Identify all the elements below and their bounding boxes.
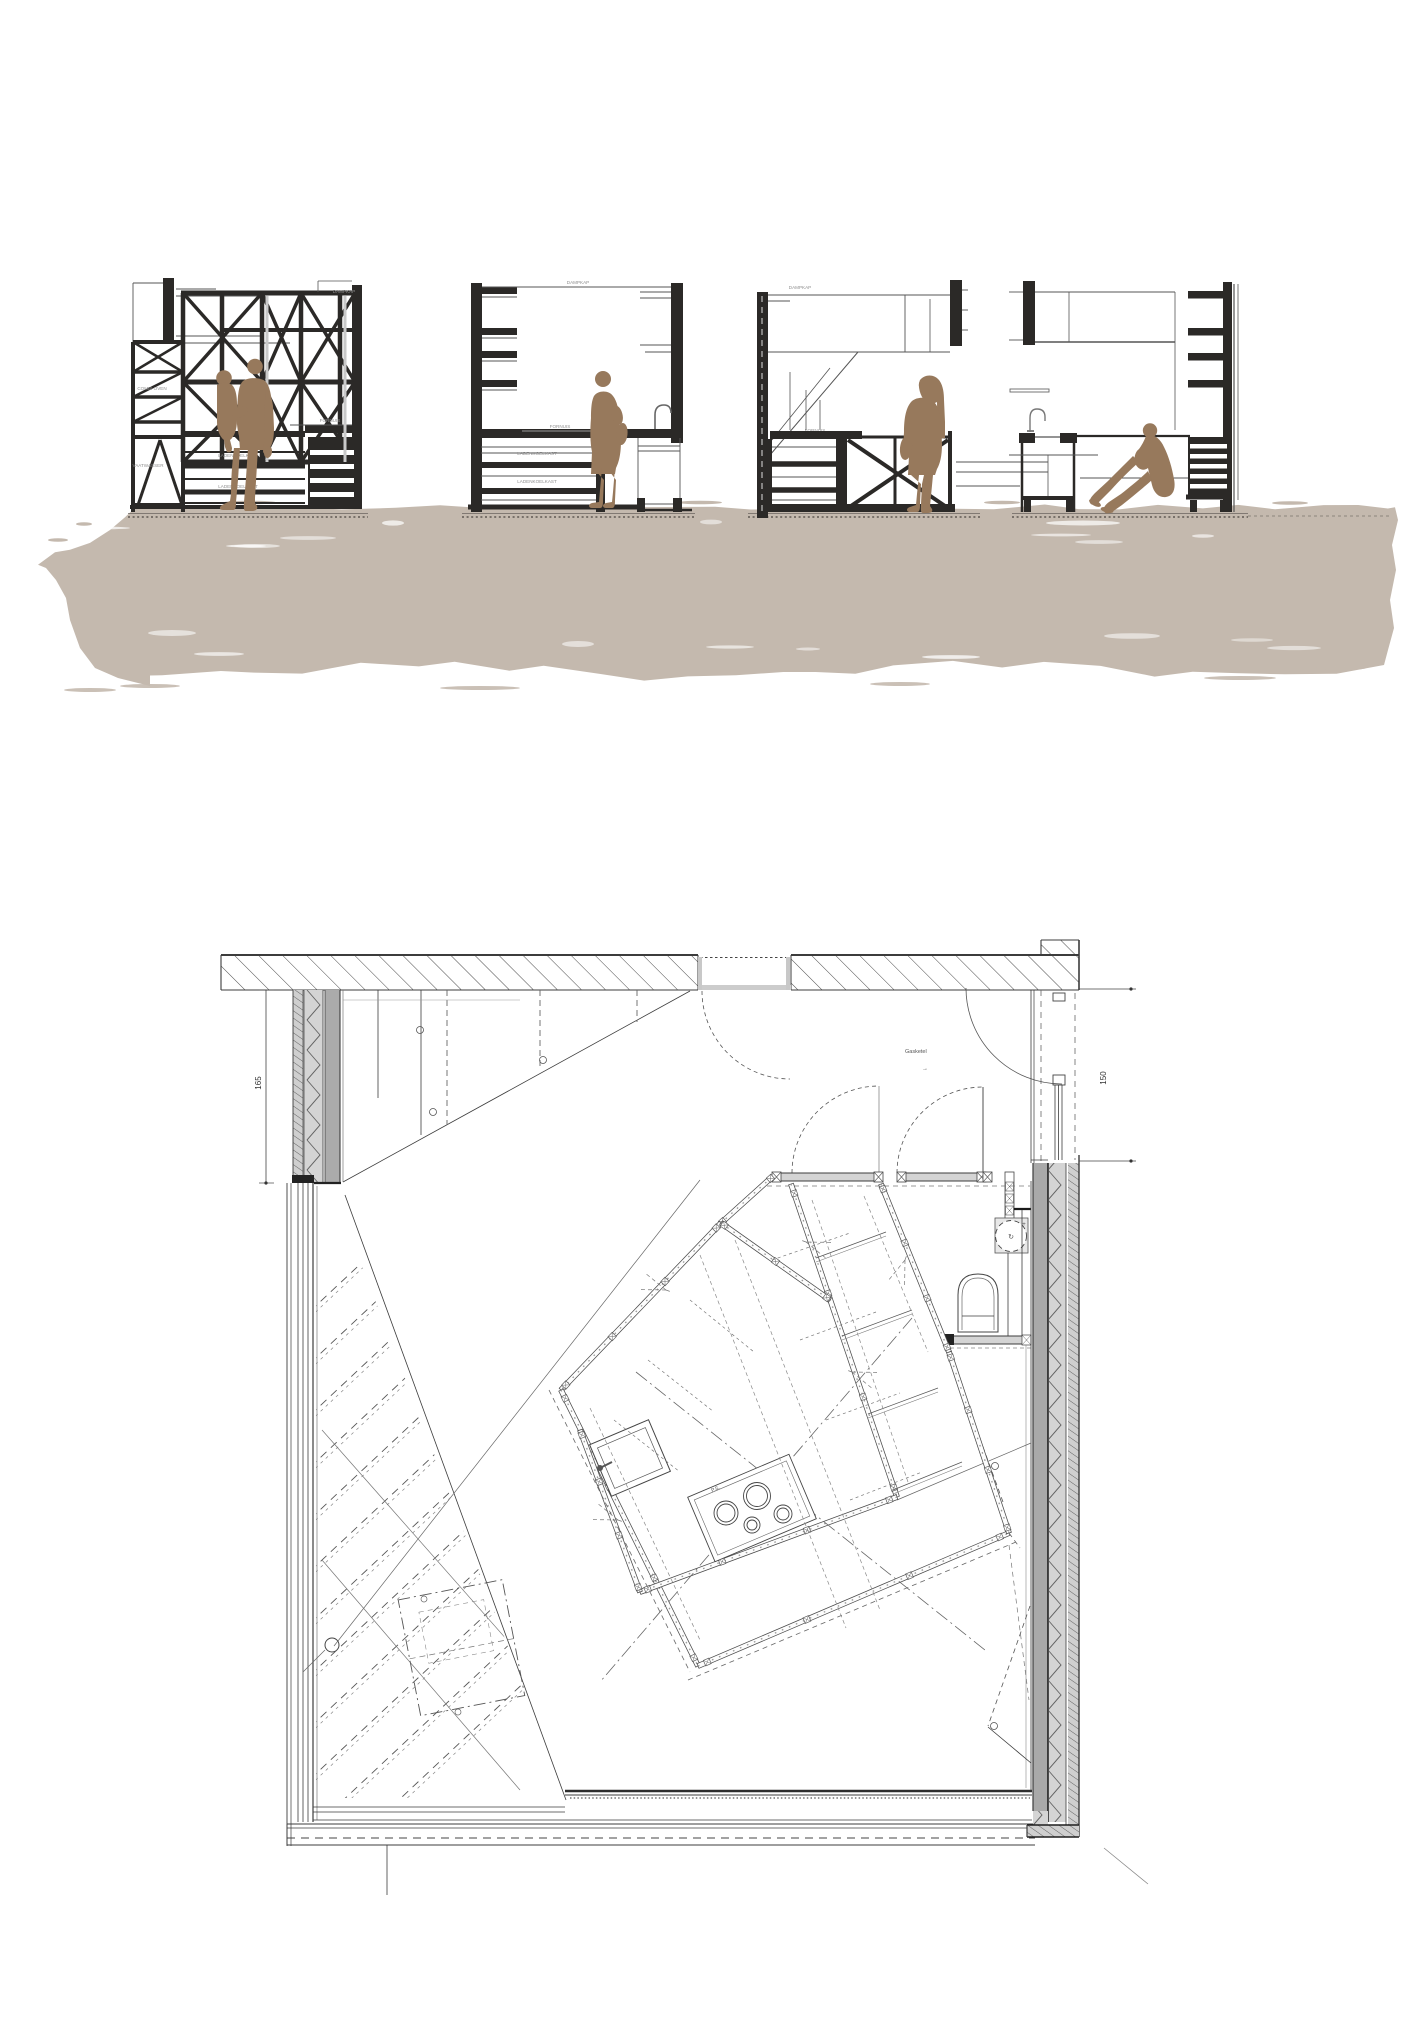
svg-text:COMBI OVEN: COMBI OVEN	[137, 386, 166, 391]
svg-text:165: 165	[254, 1076, 263, 1090]
svg-text:150: 150	[1099, 1071, 1108, 1085]
svg-text:FORNUIS: FORNUIS	[550, 424, 571, 429]
svg-text:Gasketel: Gasketel	[905, 1049, 927, 1055]
svg-text:+: +	[1022, 1222, 1026, 1228]
svg-text:↻: ↻	[1008, 1234, 1014, 1241]
svg-text:DAMPKAP: DAMPKAP	[789, 285, 811, 290]
svg-text:VAATWASSER: VAATWASSER	[132, 463, 164, 468]
svg-text:FORNUIS: FORNUIS	[320, 418, 341, 423]
svg-text:DAMPKAP: DAMPKAP	[333, 289, 355, 294]
svg-text:→: →	[922, 1066, 928, 1072]
svg-text:DAMPKAP: DAMPKAP	[567, 280, 589, 285]
svg-text:LADENKOELKAST: LADENKOELKAST	[517, 451, 557, 456]
svg-text:LADENKOELKAST: LADENKOELKAST	[517, 479, 557, 484]
